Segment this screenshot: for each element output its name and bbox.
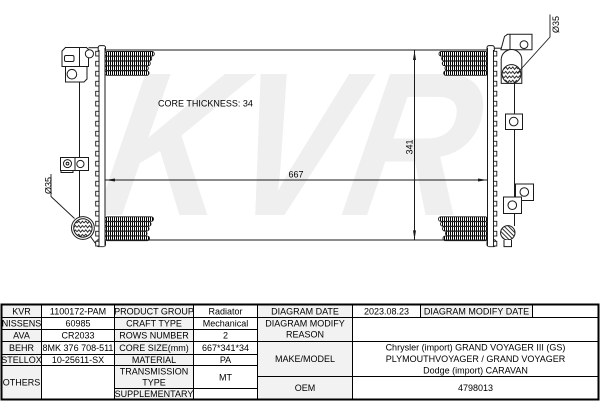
svg-text:Dodge (import) CARAVAN: Dodge (import) CARAVAN	[423, 366, 528, 376]
svg-text:STELLOX: STELLOX	[1, 355, 42, 365]
svg-text:1100172-PAM: 1100172-PAM	[50, 306, 106, 316]
svg-text:2023.08.23: 2023.08.23	[364, 306, 409, 316]
svg-text:Ø35: Ø35	[44, 177, 54, 194]
svg-text:8MK 376 708-511: 8MK 376 708-511	[43, 343, 114, 353]
svg-text:PA: PA	[220, 355, 231, 365]
svg-text:TYPE: TYPE	[142, 378, 166, 388]
svg-text:OEM: OEM	[295, 383, 316, 393]
svg-text:DIAGRAM MODIFY DATE: DIAGRAM MODIFY DATE	[424, 306, 529, 316]
svg-text:NISSENS: NISSENS	[2, 319, 42, 329]
svg-text:CR2033: CR2033	[61, 331, 94, 341]
svg-text:PRODUCT GROUP: PRODUCT GROUP	[114, 306, 194, 316]
svg-text:2: 2	[223, 331, 228, 341]
svg-text:10-25611-SX: 10-25611-SX	[52, 355, 104, 365]
svg-text:Ø35: Ø35	[551, 16, 561, 33]
svg-text:60985: 60985	[65, 319, 90, 329]
svg-text:MT: MT	[219, 372, 232, 382]
svg-text:Radiator: Radiator	[208, 306, 242, 316]
svg-text:KVR: KVR	[12, 306, 31, 316]
svg-text:CORE SIZE(mm): CORE SIZE(mm)	[119, 343, 189, 353]
svg-text:MAKE/MODEL: MAKE/MODEL	[275, 354, 335, 364]
svg-text:Chrysler (import) GRAND VOYAGE: Chrysler (import) GRAND VOYAGER III (GS)	[386, 343, 566, 353]
svg-text:DIAGRAM DATE: DIAGRAM DATE	[271, 306, 339, 316]
svg-text:OTHERS: OTHERS	[3, 378, 41, 388]
svg-text:4798013: 4798013	[458, 383, 493, 393]
svg-text:BEHR: BEHR	[9, 343, 35, 353]
svg-text:CRAFT TYPE: CRAFT TYPE	[126, 319, 182, 329]
svg-text:667: 667	[288, 170, 303, 180]
svg-text:TRANSMISSION: TRANSMISSION	[120, 367, 189, 377]
svg-text:CORE THICKNESS: 34: CORE THICKNESS: 34	[158, 99, 253, 109]
svg-text:341: 341	[405, 139, 415, 154]
svg-text:667*341*34: 667*341*34	[202, 343, 249, 353]
svg-text:Mechanical: Mechanical	[203, 319, 249, 329]
svg-text:ROWS NUMBER: ROWS NUMBER	[119, 331, 189, 341]
svg-text:PLYMOUTHVOYAGER / GRAND VOYAGE: PLYMOUTHVOYAGER / GRAND VOYAGER	[386, 354, 566, 364]
svg-text:SUPPLEMENTARY: SUPPLEMENTARY	[115, 389, 194, 399]
svg-text:MATERIAL: MATERIAL	[132, 355, 176, 365]
svg-text:AVA: AVA	[13, 331, 30, 341]
svg-text:REASON: REASON	[286, 330, 324, 340]
svg-text:DIAGRAM MODIFY: DIAGRAM MODIFY	[265, 319, 345, 329]
